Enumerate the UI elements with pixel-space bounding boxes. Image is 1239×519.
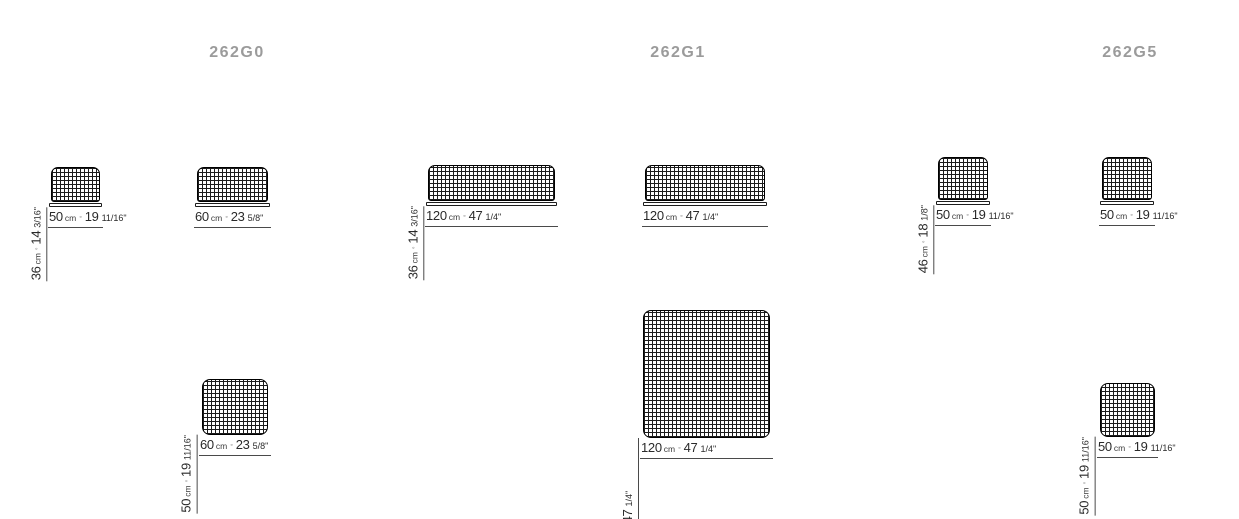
- cushion-front-view: [645, 165, 765, 206]
- dim-inch-fraction: 11/16": [102, 213, 127, 223]
- dim-unit: cm: [32, 253, 42, 264]
- dim-separator: ◦: [225, 214, 227, 221]
- figure-262g5-front-50-a: 46cm◦181/8" 50cm◦1911/16": [938, 157, 988, 226]
- dim-separator: ◦: [920, 241, 927, 243]
- cushion-front-view: 36cm◦143/16": [51, 167, 100, 207]
- dim-inch-fraction: 3/16": [32, 207, 42, 228]
- dim-cm-value: 46: [915, 259, 930, 273]
- width-dimension-label: 60cm◦235/8": [194, 209, 271, 228]
- dim-separator: ◦: [1082, 482, 1089, 484]
- dim-inch-fraction: 11/16": [1151, 443, 1176, 453]
- dim-inch-value: 47: [686, 208, 700, 223]
- dim-unit: cm: [211, 213, 222, 223]
- figure-262g5-front-50-b: 50cm◦1911/16": [1102, 157, 1152, 226]
- dimension-spec-sheet: 262G0 262G1 262G5 36cm◦143/16" 50cm◦1911…: [0, 0, 1239, 519]
- cushion-front-view: 36cm◦143/16": [428, 165, 555, 206]
- dim-inch-fraction: 5/8": [248, 213, 264, 223]
- dim-separator: ◦: [678, 445, 680, 452]
- figure-262g0-front-60: 60cm◦235/8": [197, 167, 268, 228]
- dim-separator: ◦: [1130, 212, 1132, 219]
- cushion-base: [1100, 201, 1154, 205]
- width-dimension-label: 120cm◦471/4": [642, 208, 768, 227]
- dim-inch-value: 19: [1077, 465, 1092, 479]
- dim-cm-value: 50: [179, 499, 194, 513]
- dim-cm-value: 50: [1098, 439, 1112, 454]
- dim-inch-value: 19: [85, 209, 99, 224]
- dim-inch-fraction: 11/16": [989, 211, 1014, 221]
- dim-separator: ◦: [33, 248, 40, 250]
- dim-unit: cm: [919, 246, 929, 257]
- dim-inch-value: 47: [469, 208, 483, 223]
- dim-inch-value: 18: [915, 224, 930, 238]
- dim-cm-value: 60: [200, 437, 214, 452]
- dim-unit: cm: [1081, 487, 1091, 498]
- dim-inch-value: 14: [28, 231, 43, 245]
- dim-cm-value: 50: [1077, 501, 1092, 515]
- dim-unit: cm: [1114, 443, 1125, 453]
- dim-inch-value: 19: [1134, 439, 1148, 454]
- cushion-base: [49, 203, 102, 207]
- dim-separator: ◦: [680, 213, 682, 220]
- width-dimension-label: 120cm◦471/4": [425, 208, 558, 227]
- width-dimension-label: 50cm◦1911/16": [935, 207, 991, 226]
- cushion-hatch: [428, 165, 555, 201]
- cushion-base: [426, 202, 557, 206]
- dim-inch-value: 14: [405, 230, 420, 244]
- dim-cm-value: 120: [426, 208, 447, 223]
- height-dimension-label: 50cm◦1911/16": [1077, 437, 1096, 516]
- dim-unit: cm: [65, 213, 76, 223]
- cushion-base: [195, 203, 270, 207]
- cushion-hatch: [1102, 157, 1152, 200]
- cushion-hatch: [1100, 383, 1155, 437]
- dim-separator: ◦: [184, 480, 191, 482]
- dim-inch-fraction: 5/8": [253, 441, 269, 451]
- dim-inch-fraction: 1/4": [701, 444, 717, 454]
- dim-inch-value: 19: [972, 207, 986, 222]
- width-dimension-label: 50cm◦1911/16": [1099, 207, 1155, 226]
- cushion-top-view: 50cm◦1911/16": [1100, 383, 1155, 437]
- figure-262g0-top-60x50: 50cm◦1911/16" 60cm◦235/8": [202, 379, 268, 456]
- dim-cm-value: 50: [936, 207, 950, 222]
- dim-unit: cm: [1116, 211, 1127, 221]
- width-dimension-label: 50cm◦1911/16": [48, 209, 103, 228]
- height-dimension-label: 120cm◦471/4": [620, 438, 639, 519]
- dim-cm-value: 120: [643, 208, 664, 223]
- dim-inch-value: 19: [1136, 207, 1150, 222]
- figure-262g1-front-120-b: 120cm◦471/4": [645, 165, 765, 227]
- dim-cm-value: 36: [28, 266, 43, 280]
- dim-unit: cm: [666, 212, 677, 222]
- cushion-hatch: [51, 167, 100, 202]
- product-code-262g0: 262G0: [157, 44, 317, 62]
- dim-inch-fraction: 11/16": [183, 435, 193, 460]
- cushion-base: [643, 202, 767, 206]
- dim-inch-value: 23: [231, 209, 245, 224]
- cushion-top-view: 50cm◦1911/16": [202, 379, 268, 435]
- dim-cm-value: 60: [195, 209, 209, 224]
- figure-262g0-front-50: 36cm◦143/16" 50cm◦1911/16": [51, 167, 100, 228]
- cushion-top-view: 120cm◦471/4": [643, 310, 770, 438]
- dim-inch-value: 47: [620, 510, 635, 519]
- figure-262g5-top-50x50: 50cm◦1911/16" 50cm◦1911/16": [1100, 383, 1155, 458]
- width-dimension-label: 60cm◦235/8": [199, 437, 271, 456]
- figure-262g1-front-120-a: 36cm◦143/16" 120cm◦471/4": [428, 165, 555, 227]
- dim-separator: ◦: [966, 212, 968, 219]
- dim-cm-value: 120: [641, 440, 662, 455]
- height-dimension-label: 36cm◦143/16": [405, 206, 424, 280]
- width-dimension-label: 120cm◦471/4": [640, 440, 773, 459]
- cushion-base: [936, 201, 990, 205]
- cushion-front-view: [197, 167, 268, 207]
- dim-inch-value: 19: [179, 463, 194, 477]
- product-code-262g1: 262G1: [598, 44, 758, 62]
- dim-cm-value: 50: [49, 209, 63, 224]
- figure-262g1-top-120x120: 120cm◦471/4" 120cm◦471/4": [643, 310, 770, 459]
- cushion-front-view: 46cm◦181/8": [938, 157, 988, 205]
- dim-cm-value: 36: [405, 265, 420, 279]
- dim-separator: ◦: [1128, 444, 1130, 451]
- dim-unit: cm: [952, 211, 963, 221]
- dim-inch-value: 23: [236, 437, 250, 452]
- cushion-hatch: [202, 379, 268, 435]
- dim-cm-value: 50: [1100, 207, 1114, 222]
- dim-separator: ◦: [463, 213, 465, 220]
- dim-inch-fraction: 11/16": [1153, 211, 1178, 221]
- cushion-front-view: [1102, 157, 1152, 205]
- dim-inch-fraction: 1/4": [624, 491, 634, 507]
- width-dimension-label: 50cm◦1911/16": [1097, 439, 1158, 458]
- dim-separator: ◦: [410, 247, 417, 249]
- dim-separator: ◦: [79, 214, 81, 221]
- dim-unit: cm: [664, 444, 675, 454]
- dim-inch-fraction: 1/8": [919, 205, 929, 221]
- cushion-hatch: [645, 165, 765, 201]
- product-code-262g5: 262G5: [1050, 44, 1210, 62]
- height-dimension-label: 46cm◦181/8": [915, 205, 934, 274]
- cushion-hatch: [197, 167, 268, 202]
- dim-inch-fraction: 3/16": [409, 206, 419, 227]
- dim-inch-fraction: 1/4": [486, 212, 502, 222]
- height-dimension-label: 36cm◦143/16": [28, 207, 47, 281]
- dim-inch-fraction: 1/4": [703, 212, 719, 222]
- dim-inch-fraction: 11/16": [1081, 437, 1091, 462]
- height-dimension-label: 50cm◦1911/16": [179, 435, 198, 514]
- dim-inch-value: 47: [684, 440, 698, 455]
- dim-unit: cm: [183, 485, 193, 496]
- cushion-hatch: [938, 157, 988, 200]
- dim-unit: cm: [216, 441, 227, 451]
- dim-separator: ◦: [230, 442, 232, 449]
- dim-unit: cm: [449, 212, 460, 222]
- dim-unit: cm: [409, 252, 419, 263]
- cushion-hatch: [643, 310, 770, 438]
